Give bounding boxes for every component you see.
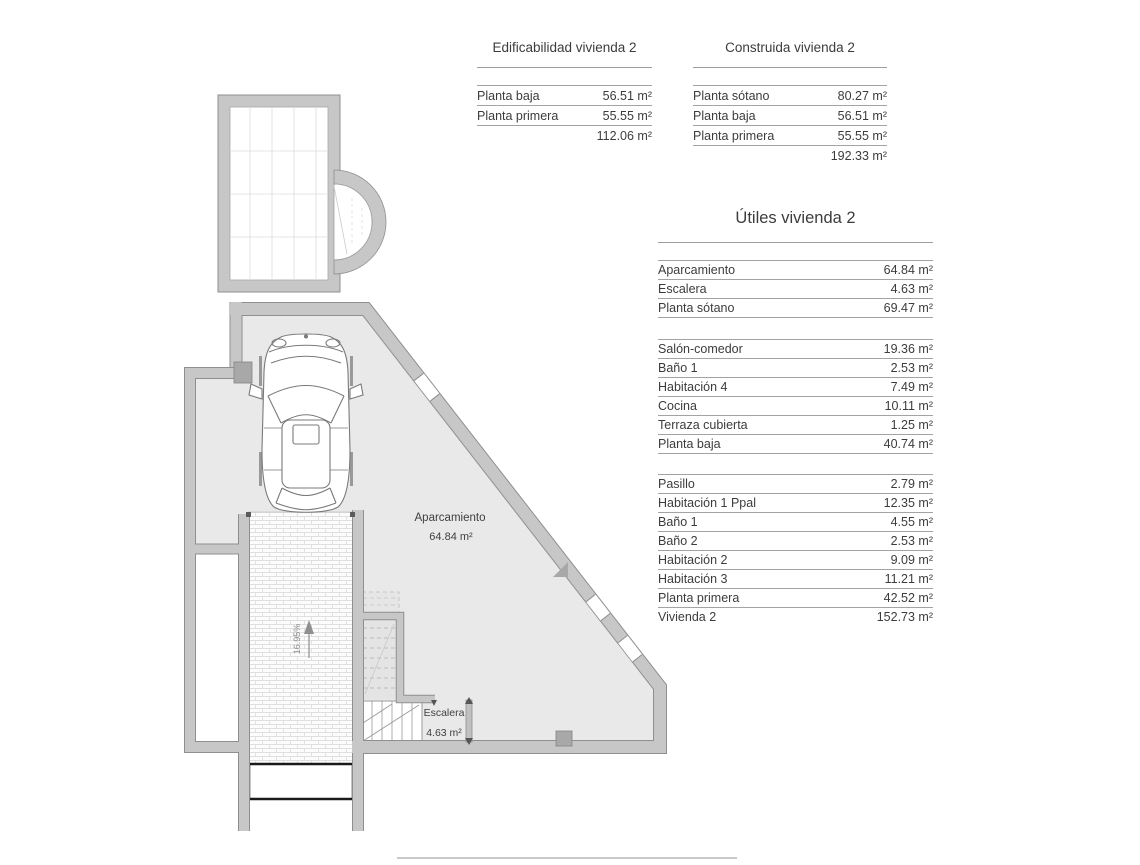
row-label: Planta primera — [693, 129, 774, 143]
row-label: Baño 1 — [658, 361, 698, 375]
table-total: 112.06 m² — [477, 126, 652, 145]
terrace — [218, 95, 386, 292]
row-label: Habitación 3 — [658, 572, 728, 586]
row-value: 2.79 m² — [891, 477, 933, 491]
row-value: 152.73 m² — [877, 610, 933, 624]
table-row: Planta sótano 69.47 m² — [658, 299, 933, 318]
utiles-section-primera: Pasillo 2.79 m² Habitación 1 Ppal 12.35 … — [658, 474, 933, 626]
table-title: Útiles vivienda 2 — [658, 208, 933, 229]
table-header-rule — [658, 242, 933, 243]
table-row: Baño 2 2.53 m² — [658, 532, 933, 551]
garage-door — [249, 764, 353, 799]
row-value: 12.35 m² — [884, 496, 933, 510]
row-label: Planta baja — [658, 437, 721, 451]
table-row: Planta baja 56.51 m² — [693, 106, 887, 126]
table-row: Vivienda 2 152.73 m² — [658, 608, 933, 626]
row-label: Cocina — [658, 399, 697, 413]
table-row: Escalera 4.63 m² — [658, 280, 933, 299]
parking-area-label: 64.84 m² — [429, 531, 472, 543]
row-label: Aparcamiento — [658, 263, 735, 277]
table-header-rule — [693, 67, 887, 68]
row-value: 4.55 m² — [891, 515, 933, 529]
row-label: Vivienda 2 — [658, 610, 716, 624]
area-table-utiles: Útiles vivienda 2 Aparcamiento 64.84 m² … — [658, 208, 933, 626]
table-row: Aparcamiento 64.84 m² — [658, 260, 933, 280]
table-row: Habitación 3 11.21 m² — [658, 570, 933, 589]
row-label: Terraza cubierta — [658, 418, 748, 432]
table-title: Edificabilidad vivienda 2 — [477, 40, 652, 56]
stair-label: Escalera — [424, 707, 465, 719]
table-row: Habitación 4 7.49 m² — [658, 378, 933, 397]
table-total: 192.33 m² — [693, 146, 887, 165]
row-label: Baño 2 — [658, 534, 698, 548]
row-label: Pasillo — [658, 477, 695, 491]
row-value: 55.55 m² — [838, 129, 887, 143]
row-value: 19.36 m² — [884, 342, 933, 356]
table-row: Planta primera 55.55 m² — [693, 126, 887, 146]
row-label: Planta sótano — [658, 301, 734, 315]
row-label: Planta primera — [477, 109, 558, 123]
row-label: Habitación 4 — [658, 380, 728, 394]
row-label: Habitación 2 — [658, 553, 728, 567]
row-label: Baño 1 — [658, 515, 698, 529]
row-value: 42.52 m² — [884, 591, 933, 605]
row-value: 11.21 m² — [885, 572, 933, 586]
table-row: Salón-comedor 19.36 m² — [658, 339, 933, 359]
row-value: 64.84 m² — [884, 263, 933, 277]
table-row: Cocina 10.11 m² — [658, 397, 933, 416]
parking-label: Aparcamiento — [415, 512, 486, 524]
table-row: Baño 1 2.53 m² — [658, 359, 933, 378]
area-table-construida: Construida vivienda 2 Planta sótano 80.2… — [693, 40, 887, 165]
car-icon — [249, 334, 363, 512]
table-row: Terraza cubierta 1.25 m² — [658, 416, 933, 435]
row-value: 10.11 m² — [885, 399, 933, 413]
row-label: Planta primera — [658, 591, 739, 605]
table-row: Baño 1 4.55 m² — [658, 513, 933, 532]
table-row: Planta baja 56.51 m² — [477, 85, 652, 106]
ramp — [249, 512, 353, 799]
utiles-section-baja: Salón-comedor 19.36 m² Baño 1 2.53 m² Ha… — [658, 339, 933, 454]
table-row: Planta sótano 80.27 m² — [693, 85, 887, 106]
row-label: Planta sótano — [693, 89, 769, 103]
row-value: 56.51 m² — [603, 89, 652, 103]
row-value: 56.51 m² — [838, 109, 887, 123]
row-value: 7.49 m² — [891, 380, 933, 394]
table-header-rule — [477, 67, 652, 68]
table-row: Habitación 2 9.09 m² — [658, 551, 933, 570]
table-row: Planta primera 55.55 m² — [477, 106, 652, 126]
row-value: 2.53 m² — [891, 534, 933, 548]
row-value: 1.25 m² — [891, 418, 933, 432]
row-value: 40.74 m² — [884, 437, 933, 451]
utiles-section-sotano: Aparcamiento 64.84 m² Escalera 4.63 m² P… — [658, 260, 933, 318]
row-value: 2.53 m² — [891, 361, 933, 375]
table-row: Pasillo 2.79 m² — [658, 474, 933, 494]
row-value: 4.63 m² — [891, 282, 933, 296]
row-label: Planta baja — [693, 109, 756, 123]
area-table-edificabilidad: Edificabilidad vivienda 2 Planta baja 56… — [477, 40, 652, 145]
row-value: 80.27 m² — [838, 89, 887, 103]
row-value: 9.09 m² — [891, 553, 933, 567]
row-label: Salón-comedor — [658, 342, 743, 356]
row-label: Planta baja — [477, 89, 540, 103]
table-row: Habitación 1 Ppal 12.35 m² — [658, 494, 933, 513]
table-row: Planta primera 42.52 m² — [658, 589, 933, 608]
table-row: Planta baja 40.74 m² — [658, 435, 933, 454]
ramp-slope-label: 16.95% — [292, 624, 302, 655]
stair-area-label: 4.63 m² — [426, 727, 462, 739]
row-label: Habitación 1 Ppal — [658, 496, 756, 510]
row-label: Escalera — [658, 282, 707, 296]
row-value: 55.55 m² — [603, 109, 652, 123]
table-title: Construida vivienda 2 — [693, 40, 887, 56]
row-value: 69.47 m² — [884, 301, 933, 315]
